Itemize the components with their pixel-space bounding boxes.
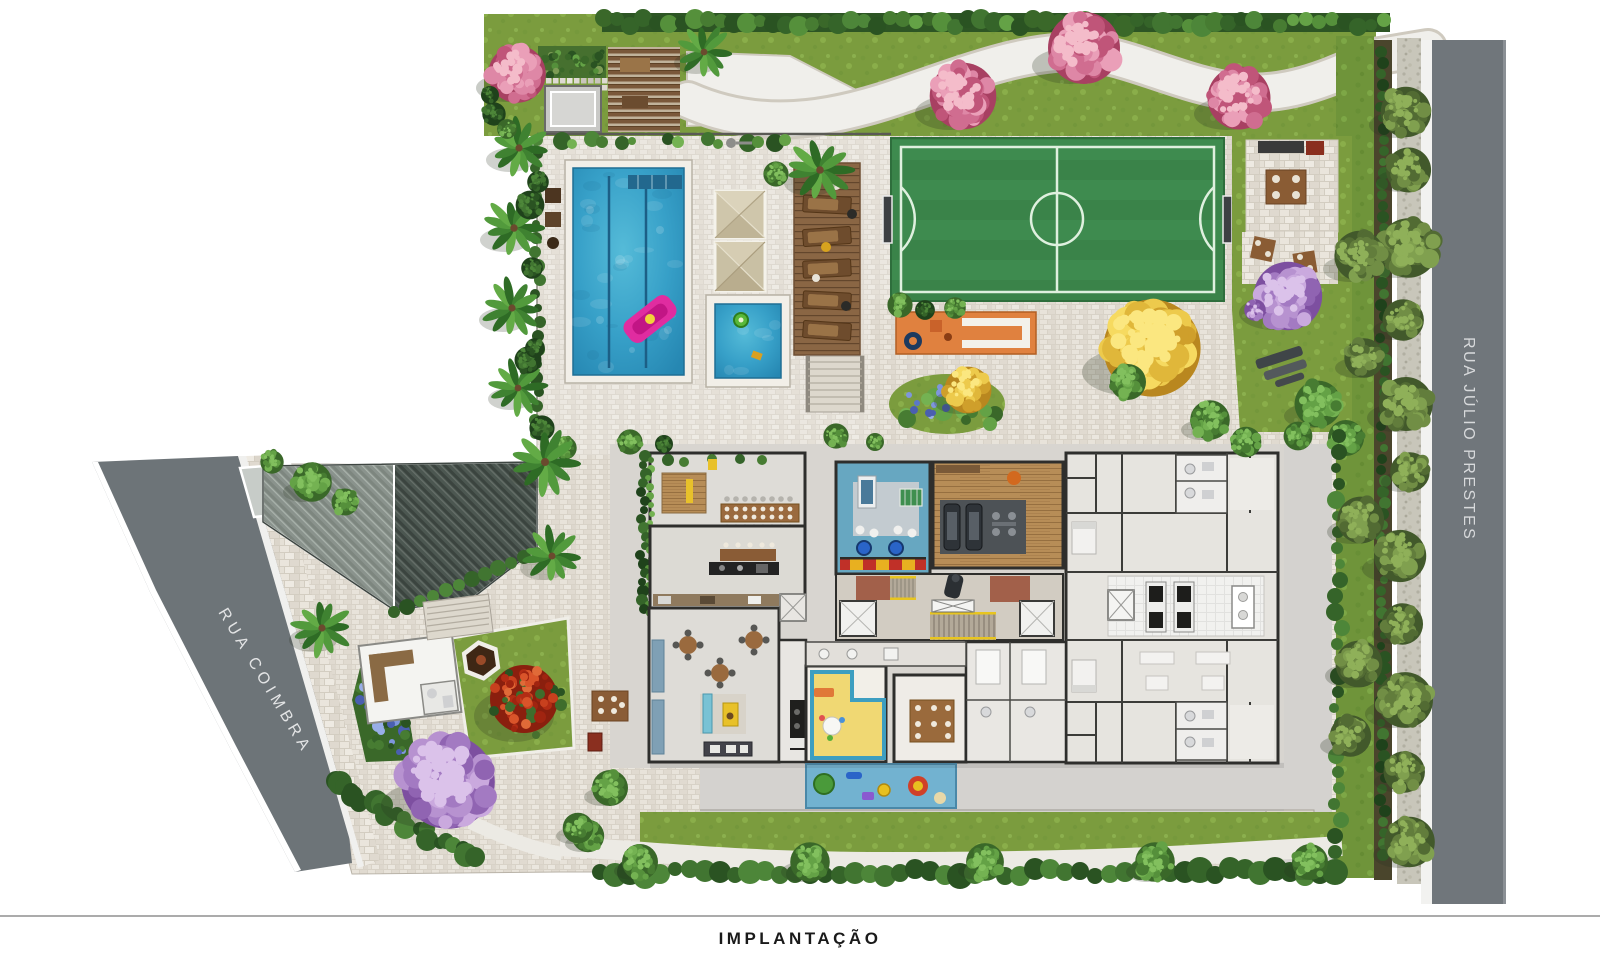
svg-text:RUA JÚLIO PRESTES: RUA JÚLIO PRESTES [1460, 337, 1479, 541]
svg-text:IMPLANTAÇÃO: IMPLANTAÇÃO [719, 928, 882, 948]
